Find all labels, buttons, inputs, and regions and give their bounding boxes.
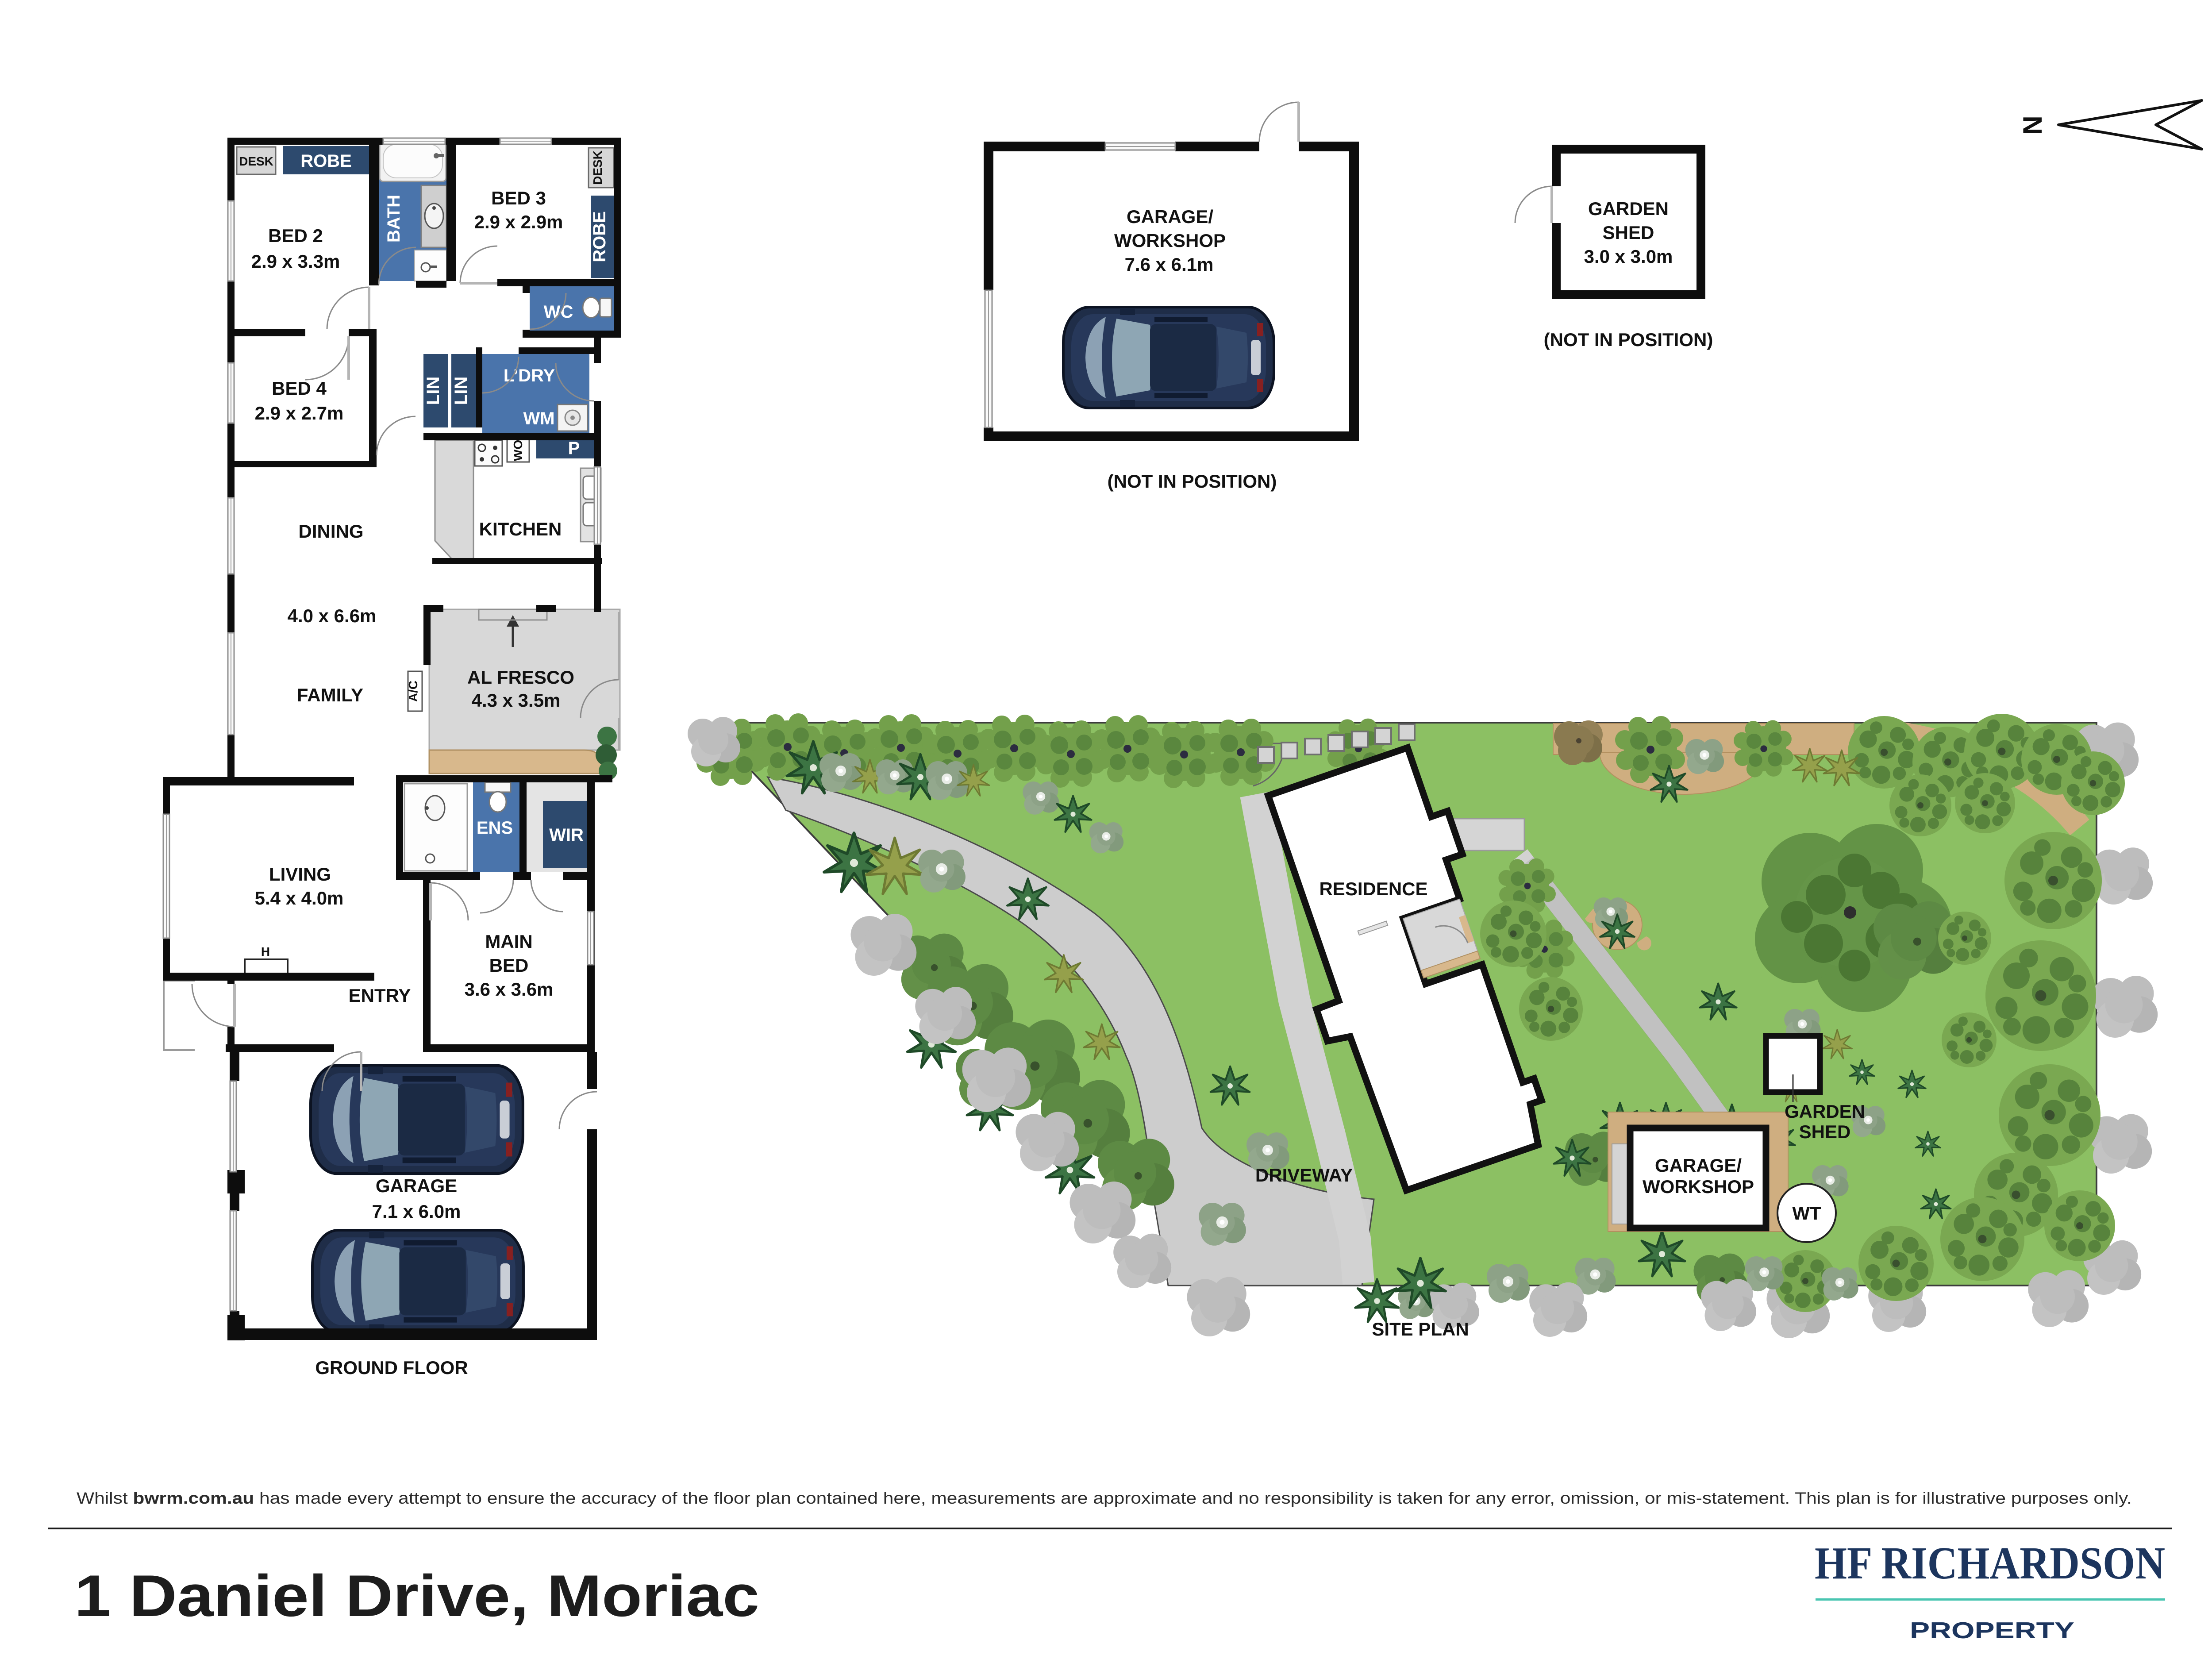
svg-text:5.4 x 4.0m: 5.4 x 4.0m xyxy=(255,888,344,908)
svg-text:LIVING: LIVING xyxy=(269,864,331,885)
svg-text:WORKSHOP: WORKSHOP xyxy=(1643,1176,1754,1197)
svg-text:WC: WC xyxy=(544,302,573,322)
svg-text:SITE PLAN: SITE PLAN xyxy=(1372,1319,1469,1340)
svg-text:GARAGE/: GARAGE/ xyxy=(1127,206,1213,227)
svg-text:GARAGE: GARAGE xyxy=(376,1175,457,1196)
svg-text:ROBE: ROBE xyxy=(300,151,352,171)
svg-text:N: N xyxy=(2018,115,2047,135)
svg-text:3.6 x 3.6m: 3.6 x 3.6m xyxy=(465,979,554,1000)
svg-text:H: H xyxy=(261,945,270,958)
svg-text:SHED: SHED xyxy=(1799,1121,1851,1142)
svg-text:WT: WT xyxy=(1792,1203,1821,1224)
svg-text:BATH: BATH xyxy=(384,195,404,242)
svg-text:DESK: DESK xyxy=(239,154,273,168)
svg-text:LIN: LIN xyxy=(451,377,471,405)
svg-text:SHED: SHED xyxy=(1603,222,1654,243)
svg-text:BED: BED xyxy=(489,955,529,976)
svg-text:(NOT IN POSITION): (NOT IN POSITION) xyxy=(1108,471,1277,492)
svg-text:WM: WM xyxy=(523,409,554,428)
svg-text:DRIVEWAY: DRIVEWAY xyxy=(1255,1165,1353,1186)
svg-text:ROBE: ROBE xyxy=(590,211,609,262)
svg-text:HF RICHARDSON: HF RICHARDSON xyxy=(1815,1538,2165,1589)
svg-text:4.0 x 6.6m: 4.0 x 6.6m xyxy=(288,605,377,626)
svg-text:LIN: LIN xyxy=(423,377,443,405)
svg-text:P: P xyxy=(568,439,580,458)
svg-text:L’DRY: L’DRY xyxy=(504,366,555,385)
svg-text:4.3 x 3.5m: 4.3 x 3.5m xyxy=(472,690,561,711)
svg-text:BED 4: BED 4 xyxy=(272,378,327,399)
svg-text:(NOT IN POSITION): (NOT IN POSITION) xyxy=(1544,329,1713,350)
svg-text:WORKSHOP: WORKSHOP xyxy=(1114,230,1226,251)
svg-text:BED 3: BED 3 xyxy=(491,188,546,208)
svg-text:GROUND FLOOR: GROUND FLOOR xyxy=(315,1357,468,1378)
svg-text:2.9 x 2.9m: 2.9 x 2.9m xyxy=(474,212,563,232)
svg-text:PROPERTY: PROPERTY xyxy=(1910,1618,2074,1644)
svg-text:DESK: DESK xyxy=(591,150,604,185)
svg-text:FAMILY: FAMILY xyxy=(297,685,363,705)
svg-text:GARDEN: GARDEN xyxy=(1785,1101,1865,1122)
svg-text:Whilst bwrm.com.au has made ev: Whilst bwrm.com.au has made every attemp… xyxy=(77,1489,2132,1507)
svg-text:7.6 x 6.1m: 7.6 x 6.1m xyxy=(1125,254,1214,275)
svg-text:GARAGE/: GARAGE/ xyxy=(1655,1155,1742,1176)
svg-text:2.9 x 2.7m: 2.9 x 2.7m xyxy=(255,403,344,423)
svg-text:ENTRY: ENTRY xyxy=(349,985,411,1006)
svg-text:WO: WO xyxy=(511,440,525,461)
svg-text:1 Daniel Drive, Moriac: 1 Daniel Drive, Moriac xyxy=(74,1563,759,1629)
svg-text:MAIN: MAIN xyxy=(485,931,532,952)
svg-text:2.9 x 3.3m: 2.9 x 3.3m xyxy=(251,251,340,272)
svg-text:KITCHEN: KITCHEN xyxy=(479,519,562,539)
svg-text:DINING: DINING xyxy=(299,521,364,542)
svg-text:WIR: WIR xyxy=(549,825,584,845)
svg-text:A/C: A/C xyxy=(406,681,420,702)
svg-text:BED 2: BED 2 xyxy=(268,225,323,246)
svg-text:3.0 x 3.0m: 3.0 x 3.0m xyxy=(1584,246,1673,267)
svg-text:AL FRESCO: AL FRESCO xyxy=(467,667,574,688)
svg-text:GARDEN: GARDEN xyxy=(1588,198,1669,219)
svg-text:7.1 x 6.0m: 7.1 x 6.0m xyxy=(372,1201,461,1222)
svg-text:RESIDENCE: RESIDENCE xyxy=(1319,878,1427,899)
svg-text:ENS: ENS xyxy=(477,818,513,838)
